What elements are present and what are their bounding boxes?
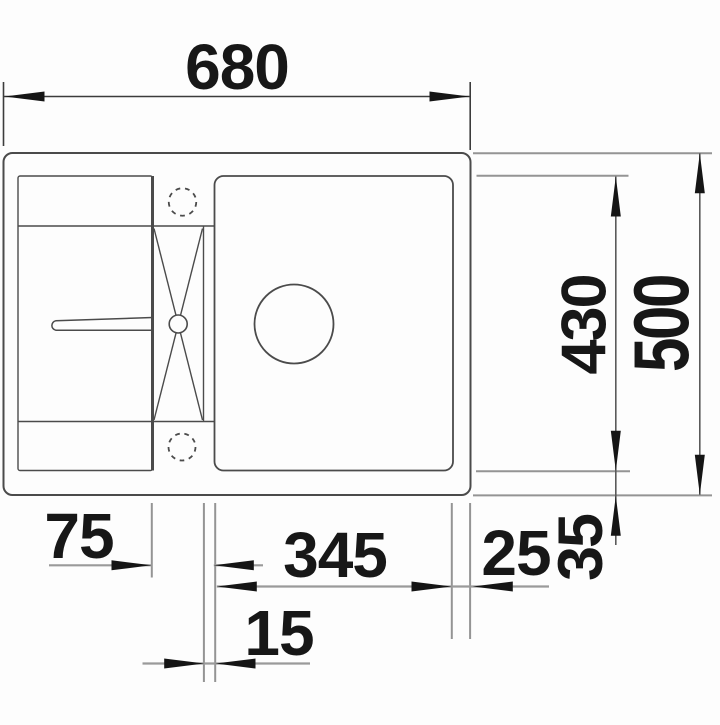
svg-text:500: 500 <box>617 275 704 372</box>
svg-text:430: 430 <box>550 275 620 374</box>
svg-text:25: 25 <box>481 517 550 589</box>
svg-text:75: 75 <box>44 500 113 572</box>
svg-text:345: 345 <box>283 519 387 591</box>
svg-text:680: 680 <box>185 31 289 103</box>
svg-text:35: 35 <box>546 514 616 581</box>
svg-text:15: 15 <box>244 597 313 669</box>
